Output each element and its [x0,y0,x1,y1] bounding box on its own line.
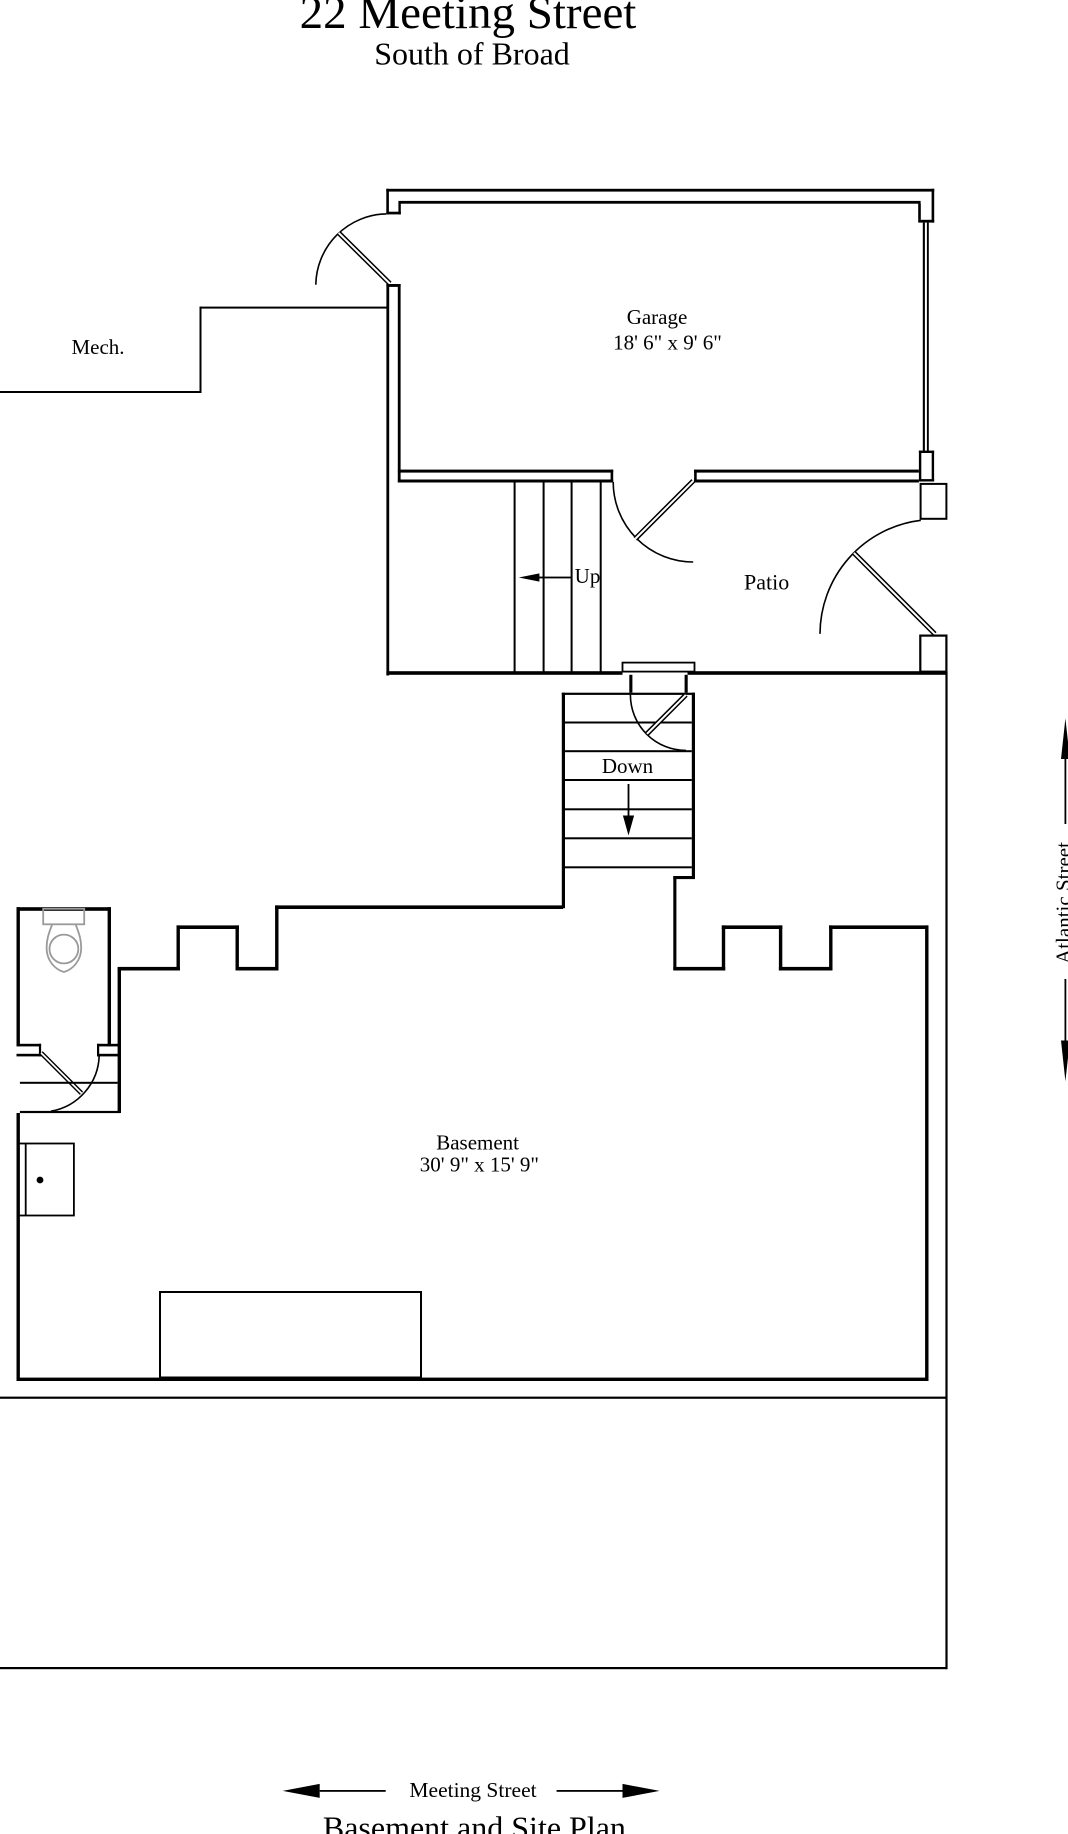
svg-text:Basement and Site Plan: Basement and Site Plan [323,1810,626,1834]
svg-text:Down: Down [602,754,654,778]
svg-text:Patio: Patio [744,570,789,595]
svg-text:Atlantic Street: Atlantic Street [1052,842,1068,964]
svg-text:Meeting Street: Meeting Street [409,1778,536,1802]
svg-text:South of Broad: South of Broad [374,36,570,72]
svg-text:22 Meeting Street: 22 Meeting Street [300,0,637,39]
svg-text:Up: Up [575,564,601,588]
svg-text:30' 9" x 15' 9": 30' 9" x 15' 9" [420,1153,539,1177]
svg-text:Garage: Garage [627,305,688,329]
svg-text:18' 6" x 9' 6": 18' 6" x 9' 6" [613,331,722,355]
svg-text:Basement: Basement [436,1131,519,1155]
svg-text:Mech.: Mech. [71,335,124,359]
